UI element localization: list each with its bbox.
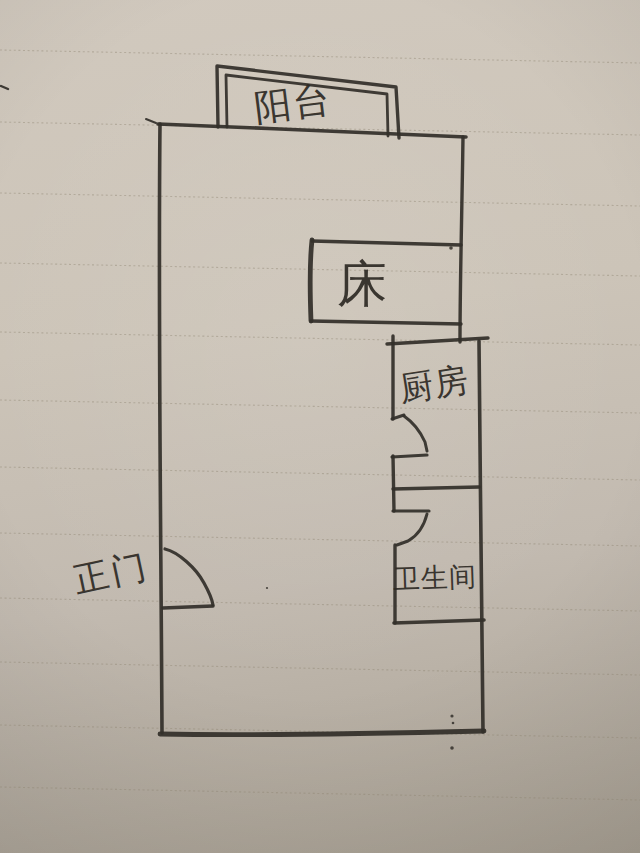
floor-plan-sketch: 阳台 床 厨房 卫生间 正门: [0, 0, 640, 853]
bed-label: 床: [337, 255, 387, 313]
ruled-line: [0, 50, 640, 63]
ruled-line: [0, 598, 640, 611]
ink-dot: [450, 746, 454, 750]
ink-dot: [266, 587, 268, 589]
kitchen-bottom-wall: [393, 487, 479, 489]
bathroom-bottom-wall: [394, 620, 484, 623]
main-door-leaf: [163, 606, 213, 608]
ink-specks: [1, 86, 454, 750]
corner-overshoot-tick: [146, 119, 156, 123]
ruled-line: [0, 332, 640, 345]
room-labels: 阳台 床 厨房 卫生间 正门: [70, 77, 478, 600]
doors: [163, 415, 429, 608]
bathroom-door-arc: [397, 514, 427, 545]
ink-dot: [452, 722, 455, 725]
ruled-line: [0, 122, 640, 135]
kitchen-door-leaf: [392, 455, 427, 457]
kitchen-top-wall: [387, 338, 488, 344]
ink-dot: [449, 246, 453, 250]
bed-left-edge: [310, 240, 312, 321]
ruled-line: [0, 662, 640, 675]
ink-dot: [450, 714, 453, 717]
wall-left: [159, 124, 162, 733]
paper-smudge: [1, 86, 8, 89]
bed-top-edge: [312, 241, 461, 245]
kitchen-door-arc: [404, 416, 427, 451]
main-door-label: 正门: [70, 546, 153, 601]
notebook-paper-background: 阳台 床 厨房 卫生间 正门: [0, 0, 640, 853]
ruled-line: [0, 533, 640, 546]
bed-bottom-edge: [311, 321, 461, 324]
ruled-line: [0, 193, 640, 206]
main-door-arc: [165, 549, 213, 605]
ruled-line: [0, 467, 640, 480]
balcony-label: 阳台: [252, 77, 335, 129]
ruled-line: [0, 787, 640, 800]
apartment-outline: [146, 119, 484, 735]
ruled-lines: [0, 50, 640, 800]
ruled-line: [0, 400, 640, 413]
wall-right-lower: [479, 341, 483, 732]
kitchen-label: 厨房: [396, 359, 471, 409]
bathroom-label: 卫生间: [392, 561, 477, 595]
ruled-line: [0, 263, 640, 276]
wall-right-upper: [460, 137, 463, 342]
kitchen-left-wall-lower: [393, 456, 394, 511]
